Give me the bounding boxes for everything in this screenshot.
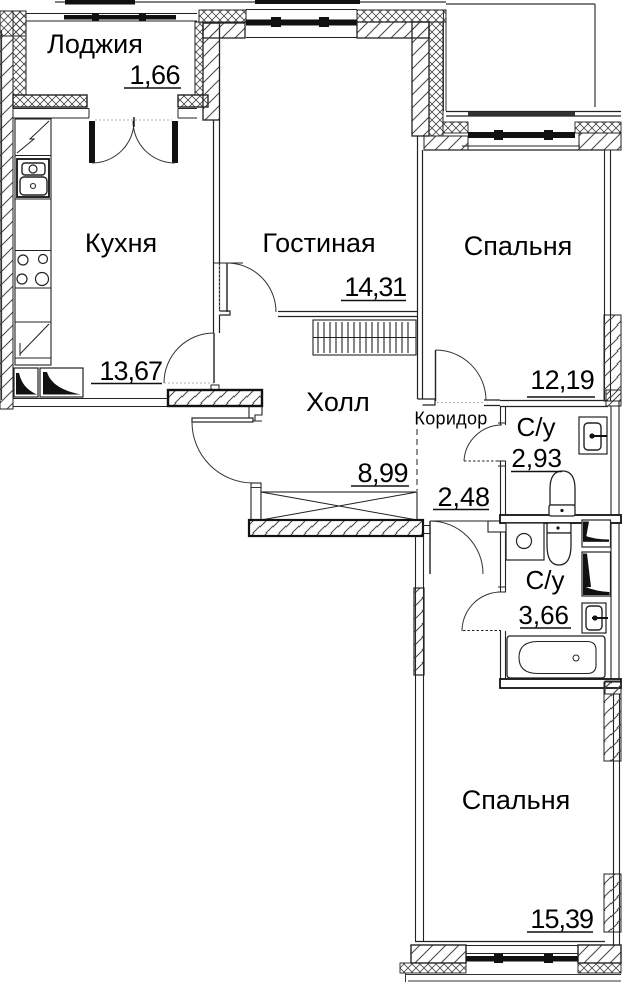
svg-text:12,19: 12,19	[530, 365, 594, 395]
svg-text:С/у: С/у	[517, 412, 556, 442]
svg-text:Лоджия: Лоджия	[47, 29, 143, 59]
svg-text:2,48: 2,48	[437, 482, 490, 512]
svg-text:13,67: 13,67	[99, 356, 162, 386]
svg-text:2,93: 2,93	[511, 443, 562, 473]
svg-text:Спальня: Спальня	[462, 785, 571, 815]
svg-text:15,39: 15,39	[530, 904, 593, 934]
svg-text:14,31: 14,31	[344, 272, 406, 302]
svg-text:1,66: 1,66	[129, 60, 180, 90]
svg-text:Коридор: Коридор	[414, 409, 487, 429]
svg-text:Спальня: Спальня	[464, 231, 573, 261]
svg-text:Гостиная: Гостиная	[262, 228, 375, 258]
svg-text:С/у: С/у	[526, 565, 565, 595]
svg-text:8,99: 8,99	[357, 458, 408, 488]
svg-text:Кухня: Кухня	[85, 228, 157, 258]
svg-text:3,66: 3,66	[518, 600, 569, 630]
svg-text:Холл: Холл	[306, 387, 370, 417]
